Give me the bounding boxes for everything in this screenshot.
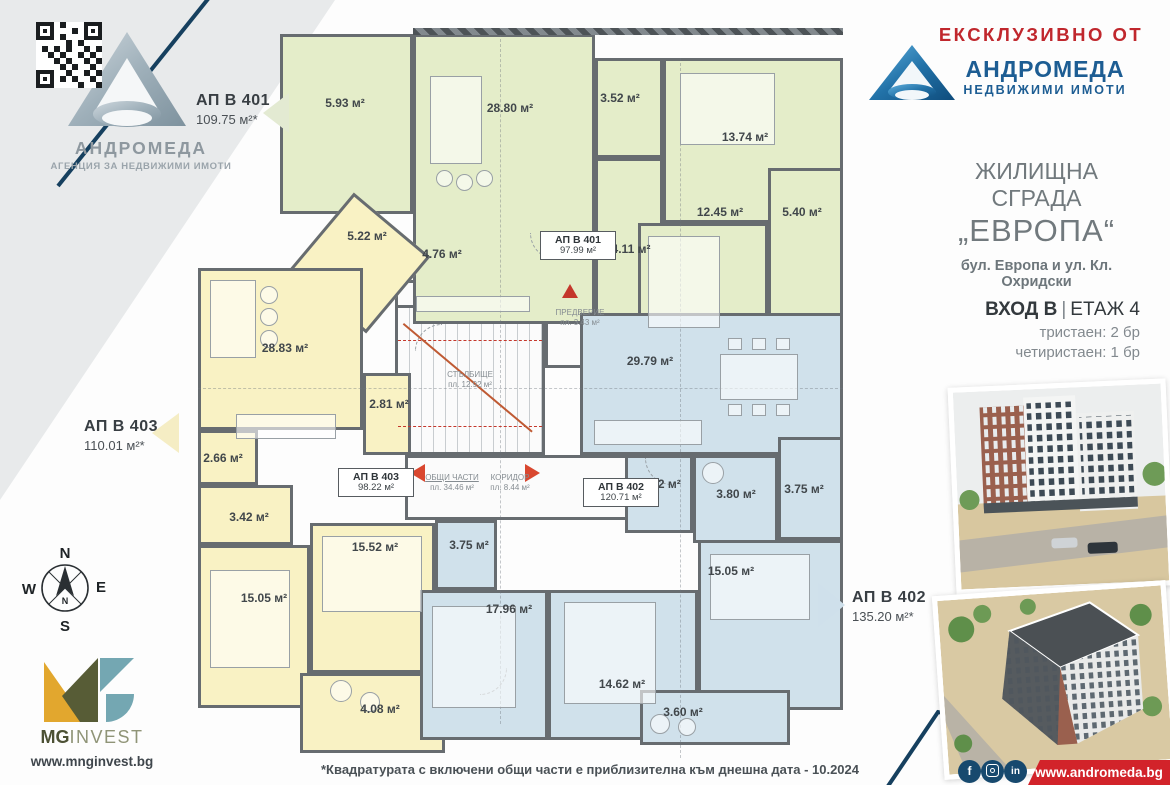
furniture-sofa	[594, 420, 702, 445]
furniture-kitchen-counter	[416, 296, 530, 312]
room-area-label: 5.40 м²	[782, 205, 822, 219]
vestibule-label: ПРЕДВЕРИЕ пл. 3.43 м²	[556, 308, 605, 328]
mginvest-logo-icon	[40, 652, 136, 724]
furniture-chair	[260, 308, 278, 326]
guide-line	[680, 58, 681, 758]
stair-direction-line	[398, 426, 542, 427]
mginvest-invest: INVEST	[69, 727, 143, 747]
room-area-label: 3.42 м²	[229, 510, 269, 524]
shared-area: пл. 34.46 м²	[430, 483, 474, 492]
apartment-401-total-area: 109.75 м²*	[196, 112, 270, 127]
room-g-bath	[595, 58, 663, 158]
building-render-aerial	[932, 580, 1170, 780]
project-title-block: ЖИЛИЩНА СГРАДА „ЕВРОПА“ бул. Европа и ул…	[933, 158, 1140, 290]
furniture-chair	[752, 404, 766, 416]
furniture-bed	[648, 236, 720, 328]
furniture-sofa	[236, 414, 336, 439]
room-area-label: 13.74 м²	[722, 130, 768, 144]
apartment-402-total-area: 135.20 м²*	[852, 609, 926, 624]
room-area-label: 29.79 м²	[627, 354, 673, 368]
agency-tagline-left: АГЕНЦИЯ ЗА НЕДВИЖИМИ ИМОТИ	[48, 161, 234, 172]
room-area-label: 15.05 м²	[708, 564, 754, 578]
room-area-label: 3.75 м²	[449, 538, 489, 552]
room-area-label: 14.62 м²	[599, 677, 645, 691]
furniture-chair	[436, 170, 453, 187]
room-y-hall	[363, 373, 411, 455]
compass-east-label: E	[96, 579, 106, 596]
furniture-terrace-chair	[678, 718, 696, 736]
apartment-label-403: АП В 403 110.01 м²*	[84, 418, 158, 453]
room-area-label: 5.93 м²	[325, 96, 365, 110]
apartment-label-401: АП В 401 109.75 м²*	[196, 92, 270, 127]
plan-box-402: АП В 402 120.71 м²	[583, 478, 659, 507]
room-b-store	[435, 520, 497, 590]
plan-box-402-net-area: 120.71 м²	[589, 493, 653, 504]
plan-box-401-net-area: 97.99 м²	[546, 246, 610, 257]
vestibule-area: пл. 3.43 м²	[560, 318, 599, 327]
facebook-glyph: f	[968, 764, 972, 778]
furniture-dining-table	[720, 354, 798, 400]
mginvest-mg: MG	[40, 727, 69, 747]
project-type: ЖИЛИЩНА СГРАДА	[933, 158, 1140, 212]
instagram-icon[interactable]	[981, 760, 1004, 783]
furniture-bed	[432, 606, 516, 708]
unit-mix-2: четиристаен: 1 бр	[920, 344, 1140, 361]
floor-plan: 5.93 м² 28.80 м² 3.52 м² 13.74 м² 12.45 …	[180, 28, 932, 762]
andromeda-logo-blue-icon	[866, 42, 958, 104]
facebook-icon[interactable]: f	[958, 760, 981, 783]
apartment-403-arrow-icon	[152, 413, 179, 453]
agency-name-left: АНДРОМЕДА	[52, 138, 230, 159]
furniture-dining-table	[210, 280, 256, 358]
shared-area-label: ОБЩИ ЧАСТИ пл. 34.46 м²	[425, 473, 479, 493]
mginvest-wordmark: MGINVEST	[36, 727, 148, 748]
vestibule-name: ПРЕДВЕРИЕ	[556, 308, 605, 317]
area-disclaimer: *Квадратурата с включени общи части е пр…	[200, 762, 980, 777]
separator: |	[1057, 299, 1070, 320]
room-area-label: 15.52 м²	[352, 540, 398, 554]
room-area-label: 3.52 м²	[600, 91, 640, 105]
compass-north-label: N	[60, 545, 71, 562]
compass-west-label: W	[22, 581, 37, 598]
linkedin-icon[interactable]: in	[1004, 760, 1027, 783]
room-area-label: 3.60 м²	[663, 705, 703, 719]
apartment-403-total-area: 110.01 м²*	[84, 438, 158, 453]
corridor-label: КОРИДОР пл. 8.44 м²	[490, 473, 529, 493]
unit-mix-1: тристаен: 2 бр	[920, 324, 1140, 341]
room-area-label: 12.45 м²	[697, 205, 743, 219]
furniture-dining-table	[430, 76, 482, 164]
room-area-label: 17.96 м²	[486, 602, 532, 616]
room-area-label: 4.11 м²	[612, 242, 651, 256]
room-area-label: 3.80 м²	[716, 487, 756, 501]
furniture-chair	[456, 174, 473, 191]
elevator-marker-icon	[562, 284, 578, 298]
qr-code[interactable]	[36, 22, 102, 88]
stairs-area: пл. 12.92 м²	[448, 380, 492, 389]
corridor-name: КОРИДОР	[491, 473, 530, 482]
compass-south-label: S	[60, 618, 70, 635]
linkedin-glyph: in	[1011, 766, 1020, 777]
corridor-area: пл. 8.44 м²	[490, 483, 529, 492]
apartment-402-arrow-icon	[818, 583, 845, 627]
furniture-chair	[776, 338, 790, 350]
room-area-label: 2.66 м²	[203, 451, 243, 465]
andromeda-website[interactable]: www.andromeda.bg	[1028, 760, 1170, 785]
apartment-402-name: АП В 402	[852, 589, 926, 607]
stairs-label: СТЪЛБИЩЕ пл. 12.92 м²	[447, 370, 493, 390]
room-area-label: 15.05 м²	[241, 591, 287, 605]
room-area-label: 2.81 м²	[369, 397, 409, 411]
agency-name-right: АНДРОМЕДА	[952, 56, 1138, 83]
instagram-glyph	[986, 764, 999, 777]
compass-icon: N W E S N	[20, 540, 110, 635]
room-area-label: 4.76 м²	[422, 247, 462, 261]
project-name: „ЕВРОПА“	[933, 213, 1140, 249]
apartment-label-402: АП В 402 135.20 м²*	[852, 589, 926, 624]
furniture-bed	[210, 570, 290, 668]
room-area-label: 3.75 м²	[784, 482, 824, 496]
mginvest-website[interactable]: www.mnginvest.bg	[20, 754, 164, 769]
shared-name: ОБЩИ ЧАСТИ	[425, 473, 479, 482]
room-area-label: 5.22 м²	[347, 229, 387, 243]
apartment-401-arrow-icon	[263, 93, 289, 133]
entrance-info: ВХОД В|ЕТАЖ 4 тристаен: 2 бр четиристаен…	[920, 299, 1140, 361]
compass-needle-label: N	[62, 596, 69, 606]
stair-direction-line	[398, 340, 542, 341]
room-area-label: 28.80 м²	[487, 101, 533, 115]
exterior-wall-hatch	[413, 28, 843, 35]
project-address: бул. Европа и ул. Кл. Охридски	[933, 258, 1140, 290]
plan-box-403-net-area: 98.22 м²	[344, 483, 408, 494]
exclusive-kicker: ЕКСКЛУЗИВНО ОТ	[936, 24, 1146, 46]
agency-tagline-right: НЕДВИЖИМИ ИМОТИ	[952, 83, 1138, 97]
room-area-label: 28.83 м²	[262, 341, 308, 355]
floor-label: ЕТАЖ 4	[1070, 299, 1140, 320]
entrance-label: ВХОД В	[985, 299, 1057, 320]
apartment-403-name: АП В 403	[84, 418, 158, 436]
apartment-401-name: АП В 401	[196, 92, 270, 110]
stairs-name: СТЪЛБИЩЕ	[447, 370, 493, 379]
plan-box-401: АП В 401 97.99 м²	[540, 231, 616, 260]
room-area-label: 4.08 м²	[360, 702, 400, 716]
building-render-front	[948, 378, 1170, 594]
plan-box-403: АП В 403 98.22 м²	[338, 468, 414, 497]
furniture-sink	[702, 462, 724, 484]
furniture-chair	[776, 404, 790, 416]
room-g-terrace1	[280, 34, 413, 214]
furniture-chair	[752, 338, 766, 350]
furniture-chair	[260, 286, 278, 304]
furniture-chair	[728, 338, 742, 350]
furniture-terrace-chair	[330, 680, 352, 702]
furniture-chair	[728, 404, 742, 416]
furniture-chair	[476, 170, 493, 187]
